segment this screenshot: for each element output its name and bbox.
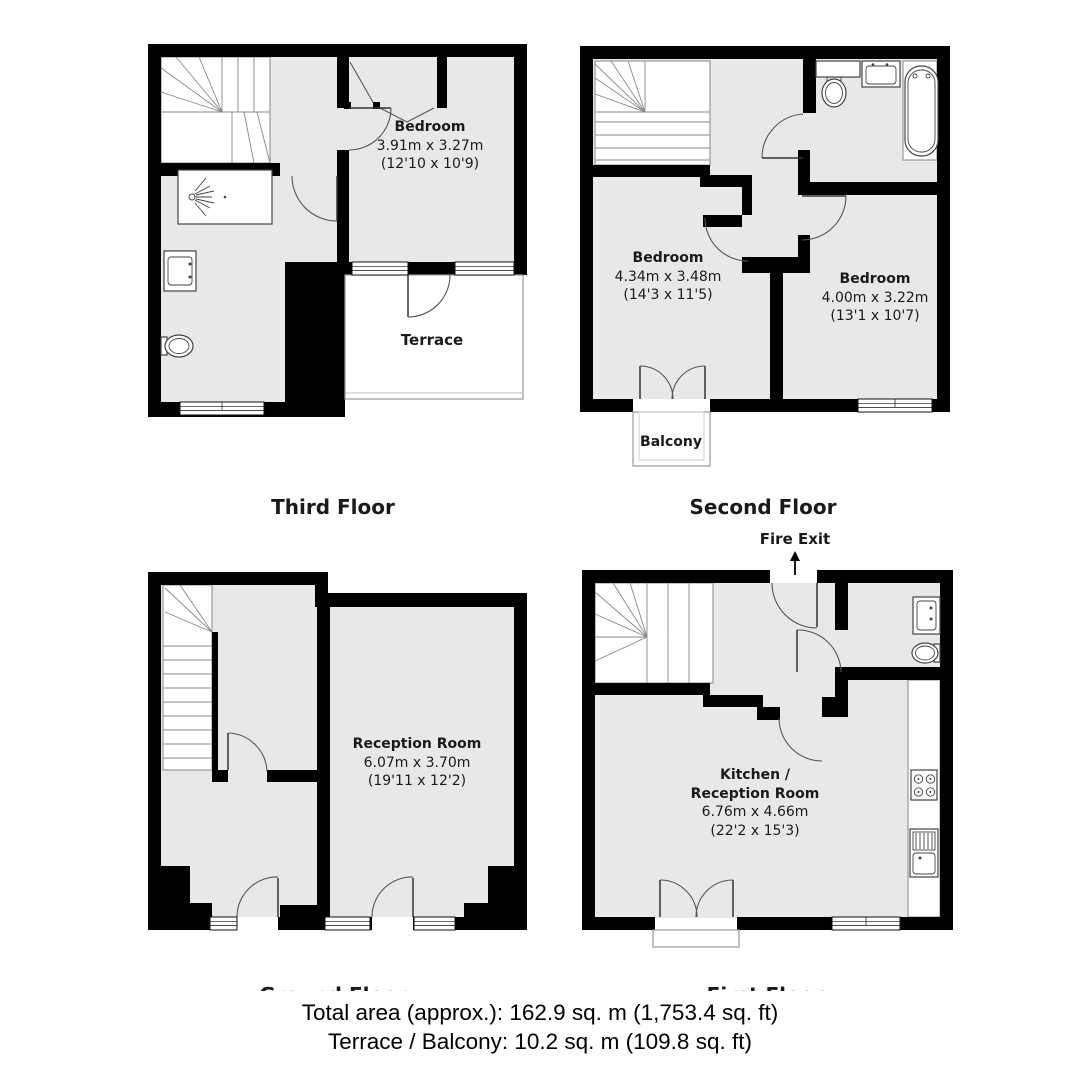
window <box>180 402 264 415</box>
floor-title-third: Third Floor <box>271 495 395 519</box>
toilet-icon <box>912 643 940 663</box>
room-label-reception: Reception Room 6.07m x 3.70m (19'11 x 12… <box>353 735 482 791</box>
toilet-icon <box>161 335 193 357</box>
stairs <box>595 61 710 165</box>
stairs <box>161 57 270 163</box>
room-name: Bedroom <box>615 249 722 268</box>
window <box>832 917 900 930</box>
floorplan-drawing <box>0 0 1080 1080</box>
room-name-line1: Kitchen / <box>691 766 820 785</box>
shower-icon <box>178 170 272 224</box>
window <box>858 399 932 412</box>
room-dim-m: 6.76m x 4.66m <box>691 803 820 822</box>
room-dim-ft: (14'3 x 11'5) <box>615 286 722 305</box>
room-label-balcony: Balcony <box>640 433 702 452</box>
room-label-bedroom-third: Bedroom 3.91m x 3.27m (12'10 x 10'9) <box>377 118 484 174</box>
room-name: Reception Room <box>353 735 482 754</box>
room-dim-ft: (13'1 x 10'7) <box>822 307 929 326</box>
setback <box>328 568 527 593</box>
area-summary: Total area (approx.): 162.9 sq. m (1,753… <box>0 991 1080 1080</box>
bathtub-icon <box>905 66 938 156</box>
floorplan-image: Bedroom 3.91m x 3.27m (12'10 x 10'9) Ter… <box>0 0 1080 1080</box>
room-dim-m: 6.07m x 3.70m <box>353 754 482 773</box>
room-label-bedroom1-second: Bedroom 4.34m x 3.48m (14'3 x 11'5) <box>615 249 722 305</box>
first-floor-plan <box>582 551 953 947</box>
hob-icon <box>911 770 937 800</box>
total-area-text: Total area (approx.): 162.9 sq. m (1,753… <box>0 998 1080 1027</box>
room-label-terrace: Terrace <box>401 331 463 350</box>
room-dim-ft: (19'11 x 12'2) <box>353 772 482 791</box>
room-name-line2: Reception Room <box>691 785 820 804</box>
sink-icon <box>164 251 196 291</box>
room-dim-ft: (12'10 x 10'9) <box>377 155 484 174</box>
windows <box>210 917 455 930</box>
window <box>325 917 370 930</box>
room-dim-m: 4.00m x 3.22m <box>822 289 929 308</box>
window <box>352 262 408 275</box>
room-label-bedroom2-second: Bedroom 4.00m x 3.22m (13'1 x 10'7) <box>822 270 929 326</box>
room-dim-m: 4.34m x 3.48m <box>615 268 722 287</box>
room-name: Bedroom <box>822 270 929 289</box>
sink-icon <box>913 597 940 634</box>
room-dim-ft: (22'2 x 15'3) <box>691 822 820 841</box>
sink-icon <box>862 61 900 87</box>
window <box>210 917 237 930</box>
kitchen-sink-icon <box>910 829 938 877</box>
stairs <box>163 585 212 770</box>
terrace-balcony-area-text: Terrace / Balcony: 10.2 sq. m (109.8 sq.… <box>0 1027 1080 1056</box>
door-threshold <box>653 930 739 947</box>
window <box>455 262 514 275</box>
fire-exit-label: Fire Exit <box>760 530 830 548</box>
third-floor-plan <box>148 44 527 417</box>
room-label-kitchen-reception: Kitchen / Reception Room 6.76m x 4.66m (… <box>691 766 820 840</box>
stairs <box>595 583 713 683</box>
fire-exit-arrow <box>790 551 800 575</box>
floor-title-second: Second Floor <box>690 495 837 519</box>
room-dim-m: 3.91m x 3.27m <box>377 137 484 156</box>
window <box>414 917 455 930</box>
room-name: Bedroom <box>377 118 484 137</box>
